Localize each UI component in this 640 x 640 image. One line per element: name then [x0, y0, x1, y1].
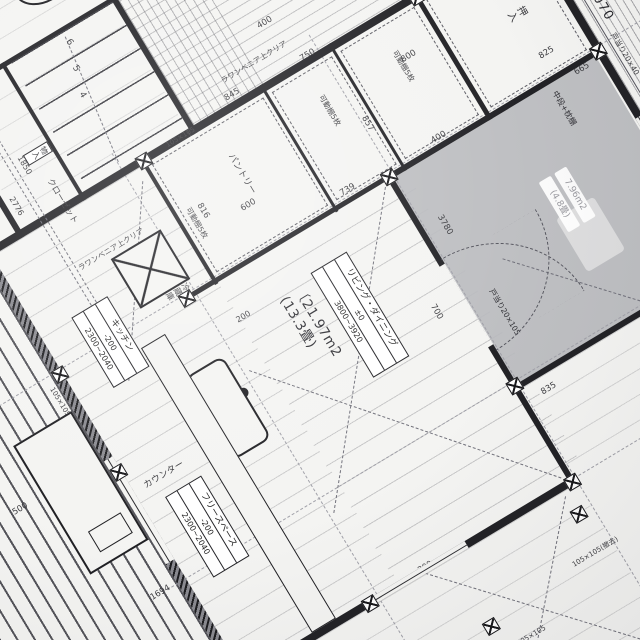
floor-plan-photo: 6 5 4 冷蔵庫 カウンター クローゼット 物入 リビング・ダイニング ±0 …: [0, 0, 640, 640]
floor-plan-sheet: 6 5 4 冷蔵庫 カウンター クローゼット 物入 リビング・ダイニング ±0 …: [0, 0, 640, 640]
